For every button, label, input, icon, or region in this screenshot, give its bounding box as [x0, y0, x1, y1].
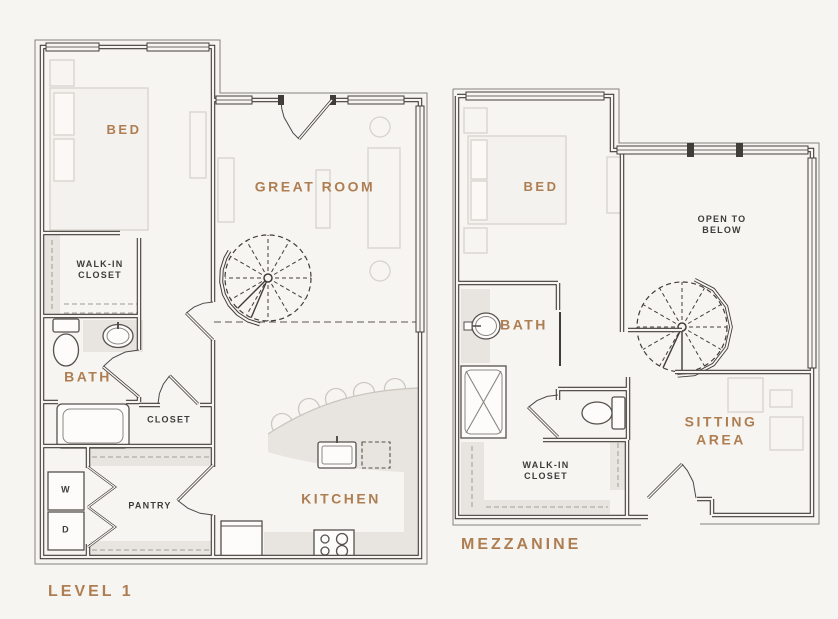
toilet [582, 397, 625, 429]
room-label-walk-in-closet-mezzanine: WALK-IN CLOSET [523, 460, 570, 483]
refrigerator [221, 521, 262, 556]
plan-title-mezzanine: MEZZANINE [461, 535, 581, 555]
spiral-staircase-level1 [221, 235, 311, 324]
windows [46, 43, 816, 368]
room-label-bed-mezzanine: BED [524, 179, 559, 195]
room-label-bath-level1: BATH [64, 368, 112, 386]
window-mullion [736, 143, 743, 157]
side-table [370, 261, 390, 281]
room-label-closet: CLOSET [147, 414, 191, 425]
shower [461, 366, 506, 438]
side-table [370, 117, 390, 137]
window-mullion [687, 143, 694, 157]
label-washer: W [61, 484, 71, 495]
entry-door [278, 95, 336, 139]
tv-console [218, 158, 234, 222]
pillow [471, 140, 487, 179]
sofa [368, 148, 400, 248]
room-label-kitchen: KITCHEN [301, 490, 381, 508]
bathtub [57, 404, 129, 448]
pillow [54, 93, 74, 135]
nightstand [464, 228, 487, 253]
room-label-walk-in-closet-level1: WALK-IN CLOSET [77, 259, 124, 282]
dresser [190, 112, 206, 178]
stair-center-post [264, 274, 272, 282]
bifold-doors [88, 467, 115, 547]
pillow [54, 139, 74, 181]
room-label-pantry: PANTRY [128, 500, 171, 511]
toilet [53, 319, 79, 366]
nightstand [50, 60, 74, 86]
sitting-chair [770, 390, 792, 407]
floor-plan-drawing [0, 0, 838, 619]
floor-plan-sheet: BED GREAT ROOM WALK-IN CLOSET BATH CLOSE… [0, 0, 838, 619]
nightstand [464, 108, 487, 133]
room-label-sitting-area: SITTING AREA [663, 414, 780, 449]
stove [314, 530, 354, 557]
pillow [471, 181, 487, 220]
exterior-trim [35, 40, 819, 564]
room-label-bath-mezzanine: BATH [500, 316, 548, 334]
plan-title-level1: LEVEL 1 [48, 582, 134, 602]
label-open-to-below: OPEN TO BELOW [698, 214, 747, 237]
label-dryer: D [62, 524, 70, 535]
room-label-bed-level1: BED [107, 122, 142, 138]
sitting-table [728, 378, 763, 412]
room-label-great-room: GREAT ROOM [255, 178, 375, 196]
